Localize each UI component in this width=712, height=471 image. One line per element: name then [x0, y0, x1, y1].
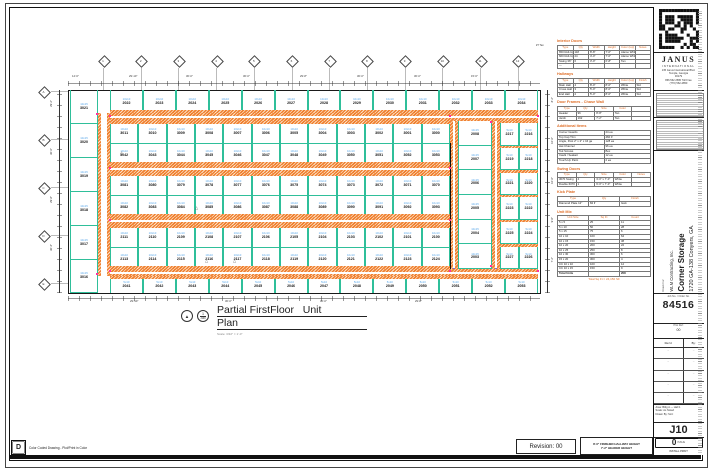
unit-number: 2106 — [262, 235, 270, 239]
dim-label: 30'-4" — [50, 244, 53, 251]
unit-cell: 10x103075 — [280, 173, 308, 195]
door-swing-icon: △ — [205, 258, 208, 263]
unit-number: 3078 — [205, 183, 213, 187]
unit-number: 2030 — [386, 101, 394, 105]
hallway-height-note: 8'-0" FINISHED HALLWAY HEIGHT 7'-2" HEAD… — [580, 437, 653, 455]
plan-scale: Scale: 3/32" = 1'-0" — [217, 332, 380, 336]
unit-number: 3075 — [290, 183, 298, 187]
unit-number: 3079 — [177, 183, 185, 187]
unit-number: 3016 — [80, 275, 88, 279]
unit-cell: 10x153021 — [70, 90, 98, 124]
unit-number: 3076 — [262, 183, 270, 187]
unit-number: 2101 — [403, 235, 411, 239]
unit-number: 3090 — [347, 205, 355, 209]
grid-bubble: 9 — [399, 55, 410, 66]
unit-number: 2045 — [254, 284, 262, 288]
unit-number: 2034 — [518, 101, 526, 105]
corridor-marker — [449, 270, 451, 272]
fine-print-1 — [654, 91, 704, 118]
unit-number: 2052 — [485, 284, 493, 288]
plan-title-line2: Plan — [217, 317, 367, 330]
dim-label: 29'-8" — [300, 75, 307, 78]
grid-leader — [329, 68, 330, 90]
unit-cell: 10x103002 — [365, 121, 393, 143]
unit-number: 3001 — [403, 131, 411, 135]
notes-table: Unit SizeSq FtCount5 x 525115 x 1050285 … — [557, 215, 651, 276]
grid-leader — [480, 68, 481, 90]
unit-number: 2219 — [506, 157, 514, 161]
unit-cell: 10x102101 — [393, 225, 421, 247]
unit-number: 3053 — [432, 153, 440, 157]
unit-number: 3003 — [347, 131, 355, 135]
unit-number: 2113 — [120, 257, 128, 261]
unit-number: 2043 — [188, 284, 196, 288]
door-header-band — [110, 276, 538, 279]
unit-number: 2225 — [506, 231, 514, 235]
unit-cell: 10x103010 — [138, 121, 166, 143]
notes-table: TypeQtyWidthHeightColor (top)Notes650 Ro… — [557, 45, 651, 69]
unit-cell: 10x103072 — [365, 173, 393, 195]
unit-number: 3006 — [262, 131, 270, 135]
unit-cell: 10x102102 — [365, 225, 393, 247]
grid-bubble-label: D — [38, 230, 49, 241]
unit-cell: 5x102216 — [519, 121, 538, 146]
unit-number: 3008 — [205, 131, 213, 135]
unit-number: 3088 — [290, 205, 298, 209]
dim-label: 8'-2" — [551, 97, 554, 102]
corridor-marker — [96, 113, 98, 115]
dim-label: 7'-2" — [551, 257, 554, 262]
grid-bubble-label: 3 — [173, 55, 184, 66]
unit-cell: 10x103074 — [308, 173, 336, 195]
unit-number: 2053 — [518, 284, 526, 288]
unit-number: 2121 — [347, 257, 355, 261]
dim-line-right — [545, 90, 550, 293]
unit-number: 3086 — [233, 205, 241, 209]
unit-number: 3047 — [262, 153, 270, 157]
corridor-marker — [490, 121, 492, 123]
unit-number: 3077 — [233, 183, 241, 187]
grid-bubble-label: 6 — [286, 55, 297, 66]
sheet-bottom-bar — [9, 455, 701, 459]
drawing-info-section: Area: Bldg A — Hall 1Scale: As NotedDraw… — [654, 405, 704, 423]
party-wall — [110, 195, 450, 196]
grid-bubble: D — [38, 230, 49, 241]
legend-key: D — [16, 444, 21, 451]
unit-number: 3084 — [177, 205, 185, 209]
unit-number: 2120 — [318, 257, 326, 261]
dim-label: 15'-6" — [471, 75, 478, 78]
unit-cell: 10x103000 — [422, 121, 450, 143]
door-header-band — [110, 162, 450, 165]
unit-number: 2217 — [506, 132, 514, 136]
unit-number: 3004 — [318, 131, 326, 135]
grid-bubble: 4 — [211, 55, 222, 66]
unit-number: 2008 — [471, 132, 479, 136]
unit-cell: 5x102223 — [500, 195, 519, 220]
legend-text: Color Coded Drawing - Plot/Print in Colo… — [29, 446, 87, 450]
grid-leader — [367, 68, 368, 90]
notes-section-title: Swing Doors — [557, 167, 651, 172]
notes-section-title: Hallways — [557, 72, 651, 77]
corridor-marker — [537, 270, 539, 272]
unit-cell: 10x152004 — [458, 220, 492, 245]
unit-cell: 10x102103 — [337, 225, 365, 247]
corridor-marker — [96, 273, 98, 275]
grid-bubble: B — [38, 134, 49, 145]
revision-box: Revision: 00 — [516, 439, 576, 454]
sheet-number: J10 — [669, 424, 687, 436]
unit-number: 2023 — [155, 101, 163, 105]
corridor-marker — [109, 219, 111, 221]
grid-bubble: 10 — [437, 55, 448, 66]
unit-number: 2221 — [506, 181, 514, 185]
project-section: Drawn For: WLM Contracting, Inc. Corner … — [654, 151, 704, 295]
unit-number: 2110 — [149, 235, 157, 239]
corridor-marker — [537, 115, 539, 117]
dim-label: 30'-0" — [243, 75, 250, 78]
hallway-horizontal — [110, 113, 538, 116]
hallway-vertical — [492, 121, 495, 269]
unit-number: 2124 — [432, 257, 440, 261]
door-header-band — [500, 195, 538, 197]
unit-cell: 5x102227 — [500, 244, 519, 269]
grid-leader — [141, 68, 142, 90]
corridor-marker — [449, 167, 451, 169]
unit-number: 2114 — [149, 257, 157, 261]
unit-cell: 10x102109 — [167, 225, 195, 247]
drawn-for-label: Drawn For: — [662, 153, 665, 292]
unit-number: 2118 — [262, 257, 270, 261]
unit-number: 2029 — [353, 101, 361, 105]
qr-section — [654, 7, 704, 53]
unit-number: 2024 — [188, 101, 196, 105]
grid-bubble: 7 — [324, 55, 335, 66]
unit-number: 3020 — [80, 140, 88, 144]
grid-bubble: 1 — [98, 55, 109, 66]
unit-number: 3052 — [403, 153, 411, 157]
revision-value: Revision: 00 — [529, 444, 562, 450]
unit-cell: 10x102107 — [223, 225, 251, 247]
issue-number: 0 — [672, 439, 676, 447]
hallway-horizontal — [110, 165, 450, 168]
unit-number: 3050 — [347, 153, 355, 157]
door-header-band — [500, 220, 538, 222]
door-swing-icon: △ — [195, 205, 198, 210]
unit-number: 2220 — [525, 181, 533, 185]
unit-cell: 10x103076 — [252, 173, 280, 195]
sheet-number-section: J10 — [654, 423, 704, 438]
unit-number: 2007 — [471, 157, 479, 161]
unit-number: 3083 — [148, 205, 156, 209]
unit-number: 3005 — [290, 131, 298, 135]
door-swing-icon: △ — [120, 150, 123, 155]
unit-number: 3018 — [80, 208, 88, 212]
notes-section-title: Door Frames - Chase Wall — [557, 100, 651, 105]
door-header-band — [500, 244, 538, 246]
grid-bubble: 5 — [248, 55, 259, 66]
unit-cell: 10x102104 — [308, 225, 336, 247]
unit-cell: 5x102219 — [500, 146, 519, 171]
unit-number: 2047 — [320, 284, 328, 288]
plan-title-line1: Partial FirstFloor Unit — [217, 304, 367, 317]
grid-bubble-label: 10 — [437, 55, 448, 66]
dim-label: 30'-0" — [357, 75, 364, 78]
unit-cell: 10x102106 — [252, 225, 280, 247]
unit-number: 2226 — [525, 255, 533, 259]
door-header-band — [110, 121, 450, 124]
notes-row: Double 607016'-0" x 7'-0"White — [558, 182, 651, 187]
notes-row: Touch-Up Paint2 ea — [558, 158, 651, 163]
grid-bubble-label: 8 — [361, 55, 372, 66]
grid-bubble: 3 — [173, 55, 184, 66]
door-header-band — [110, 225, 450, 228]
unit-number: 2108 — [205, 235, 213, 239]
party-wall — [110, 143, 450, 144]
title-block-edge-text — [698, 9, 702, 453]
unit-number: 2216 — [525, 132, 533, 136]
unit-cell: 10x152007 — [458, 146, 492, 171]
dim-label: 29'-2" — [50, 100, 53, 107]
grid-leader — [292, 68, 293, 90]
unit-number: 3089 — [318, 205, 326, 209]
brand-address: 135 Janus International Blvd.Temple, Geo… — [654, 69, 704, 85]
grid-bubble-label: 5 — [248, 55, 259, 66]
fine-print-2 — [654, 118, 704, 151]
notes-table: TypeQtySizeColorNotes3070 Swing43'-0" x … — [557, 172, 651, 187]
grid-leader — [405, 68, 406, 90]
notes-section-title: Kick Plate — [557, 190, 651, 195]
dim-label: 29'-10" — [129, 75, 137, 78]
hallway-height-line2: 7'-2" HEADER HEIGHT — [601, 446, 632, 450]
unit-cell: 10x103007 — [223, 121, 251, 143]
grid-bubble-label: E — [38, 278, 49, 289]
notes-section-title: Unit Mix — [557, 210, 651, 215]
unit-number: 3010 — [148, 131, 156, 135]
print-type-label: INSTALL PRINT — [654, 448, 704, 455]
unit-cell: 10x103071 — [393, 173, 421, 195]
unit-cell: 10x103009 — [167, 121, 195, 143]
corridor-marker — [109, 167, 111, 169]
unit-cell: 10x152003 — [458, 244, 492, 269]
unit-number: 2050 — [419, 284, 427, 288]
party-wall — [110, 247, 450, 248]
grid-bubble-label: 2 — [135, 55, 146, 66]
corridor-marker — [109, 270, 111, 272]
unit-cell: 10x152005 — [458, 195, 492, 220]
note-callout: #7 Tan — [536, 44, 544, 47]
job-number-section: Job No. / Order No. 84516 — [654, 294, 704, 324]
grid-leader — [103, 68, 104, 90]
dim-label: 30'-0" — [320, 300, 327, 303]
plot-ref-value: 00 — [654, 328, 704, 332]
unit-number: 3080 — [148, 183, 156, 187]
grid-leader — [216, 68, 217, 90]
unit-cell: 10x103081 — [110, 173, 138, 195]
unit-cell: 10x153016 — [70, 260, 98, 293]
door-header-band — [110, 214, 450, 217]
unit-number: 3019 — [80, 174, 88, 178]
unit-number: 2027 — [287, 101, 295, 105]
dim-line-top — [68, 81, 540, 86]
detail-sheet: J100 — [200, 317, 205, 320]
unit-cell: 5x102222 — [519, 195, 538, 220]
grid-leader — [254, 68, 255, 90]
unit-number: 3081 — [120, 183, 128, 187]
grid-bubble: A — [38, 86, 49, 97]
grid-bubble-label: C — [38, 182, 49, 193]
unit-number: 3091 — [375, 205, 383, 209]
unit-cell: 5x102221 — [500, 170, 519, 195]
unit-cell: 10x103077 — [223, 173, 251, 195]
unit-number: 2218 — [525, 157, 533, 161]
unit-number: 2025 — [221, 101, 229, 105]
unit-number: 3009 — [177, 131, 185, 135]
unit-cell: 10x153020 — [70, 124, 98, 158]
grid-leader — [178, 68, 179, 90]
grid-bubble-label: 11 — [475, 55, 486, 66]
unit-cell: 10x102105 — [280, 225, 308, 247]
plan-title-block: ▲ 1 J100 Partial FirstFloor Unit Plan Sc… — [180, 304, 380, 336]
unit-number: 2100 — [432, 235, 440, 239]
detail-callout-icon: 1 J100 — [197, 310, 209, 322]
dim-label: 29'-10" — [130, 300, 138, 303]
unit-number: 3048 — [290, 153, 298, 157]
unit-number: 2028 — [320, 101, 328, 105]
grid-bubble: 12 — [512, 55, 523, 66]
unit-number: 2123 — [403, 257, 411, 261]
brand-sub: INTERNATIONAL — [654, 64, 704, 68]
brand-section: JANUS INTERNATIONAL 135 Janus Internatio… — [654, 53, 704, 91]
unit-cell: 10x152008 — [458, 121, 492, 146]
unit-number: 3044 — [177, 153, 185, 157]
unit-cell: 10x102111 — [110, 225, 138, 247]
unit-cell: 10x102110 — [138, 225, 166, 247]
unit-cell: 10x102108 — [195, 225, 223, 247]
brand-name: JANUS — [654, 55, 704, 64]
grid-bubble-label: 4 — [211, 55, 222, 66]
unit-number: 2103 — [347, 235, 355, 239]
corridor-marker — [449, 219, 451, 221]
grid-bubble: 8 — [361, 55, 372, 66]
unit-number: 2107 — [233, 235, 241, 239]
unit-number: 3046 — [233, 153, 241, 157]
grid-bubble: 2 — [135, 55, 146, 66]
unit-number: 3070 — [432, 183, 440, 187]
unit-cell: 10x103070 — [422, 173, 450, 195]
notes-footer: Total Sq Ft = 24,150 SF — [557, 278, 651, 282]
notes-table: TypeQtySizeColorHeader968'-8"TanJamb1927… — [557, 106, 651, 121]
north-arrow-icon: ▲ — [181, 310, 193, 322]
unit-cell: 10x152006 — [458, 170, 492, 195]
unit-cell: 10x103005 — [280, 121, 308, 143]
dim-label: 29'-8" — [50, 196, 53, 203]
unit-number: 2046 — [287, 284, 295, 288]
hallway-horizontal — [110, 217, 450, 220]
unit-number: 2032 — [452, 101, 460, 105]
wall-partition — [450, 143, 451, 269]
grid-bubble: 11 — [475, 55, 486, 66]
rev-col-header: Rev'd — [654, 339, 684, 347]
unit-number: 3002 — [375, 131, 383, 135]
dim-label: 30'-0" — [50, 148, 53, 155]
unit-number: 2044 — [221, 284, 229, 288]
unit-number: 3071 — [403, 183, 411, 187]
unit-number: 3092 — [403, 205, 411, 209]
unit-number: 2102 — [375, 235, 383, 239]
unit-number: 3051 — [375, 153, 383, 157]
grid-bubble-label: 1 — [98, 55, 109, 66]
grid-bubble-label: A — [38, 86, 49, 97]
hallway-vertical — [98, 113, 101, 276]
unit-cell: 10x103011 — [110, 121, 138, 143]
title-block: JANUS INTERNATIONAL 135 Janus Internatio… — [653, 7, 704, 455]
unit-number: 2006 — [471, 181, 479, 185]
dim-line-bottom — [68, 296, 540, 301]
unit-number: 3073 — [347, 183, 355, 187]
unit-cell: 10x103006 — [252, 121, 280, 143]
unit-number: 2111 — [120, 235, 128, 239]
project-address: 1720 GA-138 Conyers, GA. — [689, 153, 695, 292]
drawing-sheet: 123456789101112ABCDE14'-6"29'-10"30'-0"3… — [0, 0, 712, 471]
unit-number: 3082 — [120, 205, 128, 209]
notes-table: TypeQtyWidthHeightColor (top)FinishMain … — [557, 78, 651, 98]
unit-cell: 10x103078 — [195, 173, 223, 195]
unit-cell: 5x102226 — [519, 244, 538, 269]
unit-cell: 10x103008 — [195, 121, 223, 143]
revision-row: –– — [654, 371, 704, 382]
unit-cell: 10x103080 — [138, 173, 166, 195]
dim-label: 10'-0" — [551, 137, 554, 144]
unit-cell: 10x153017 — [70, 226, 98, 260]
unit-number: 2104 — [318, 235, 326, 239]
unit-cell: 10x103079 — [167, 173, 195, 195]
unit-cell: 5x102218 — [519, 146, 538, 171]
project-name: Corner Storage — [677, 153, 686, 292]
notes-row: Jamb1927'-2"Tan — [558, 116, 651, 121]
unit-number: 2026 — [254, 101, 262, 105]
unit-number: 2109 — [177, 235, 185, 239]
grid-bubble-label: 12 — [512, 55, 523, 66]
unit-cell: 5x102220 — [519, 170, 538, 195]
unit-number: 3017 — [80, 242, 88, 246]
plot-ref-section: Plot Ref: 00 — [654, 324, 704, 339]
notes-row: — — [558, 64, 651, 69]
dim-label: 14'-6" — [72, 75, 79, 78]
dim-label: 9'-6" — [551, 217, 554, 222]
legend-key-box: D — [11, 440, 26, 455]
revision-row: –– — [654, 382, 704, 393]
unit-number: 3000 — [432, 131, 440, 135]
door-header-band — [500, 170, 538, 172]
unit-cell: 5x102224 — [519, 220, 538, 245]
notes-section-title: Interior Doors — [557, 39, 651, 44]
door-header-band — [500, 146, 538, 148]
client-name: WLM Contracting, Inc. — [669, 153, 674, 292]
unit-number: 3045 — [205, 153, 213, 157]
job-number: 84516 — [654, 299, 704, 311]
revision-row: –– — [654, 348, 704, 359]
dim-label: 29'-8" — [415, 300, 422, 303]
unit-cell: 10x103001 — [393, 121, 421, 143]
unit-number: 2041 — [122, 284, 130, 288]
dim-line-left — [57, 90, 62, 293]
unit-number: 3007 — [233, 131, 241, 135]
unit-number: 2004 — [471, 231, 479, 235]
unit-number: 2049 — [386, 284, 394, 288]
notes-panel: Interior DoorsTypeQtyWidthHeightColor (t… — [557, 36, 651, 281]
notes-section-title: Additional Items — [557, 124, 651, 129]
